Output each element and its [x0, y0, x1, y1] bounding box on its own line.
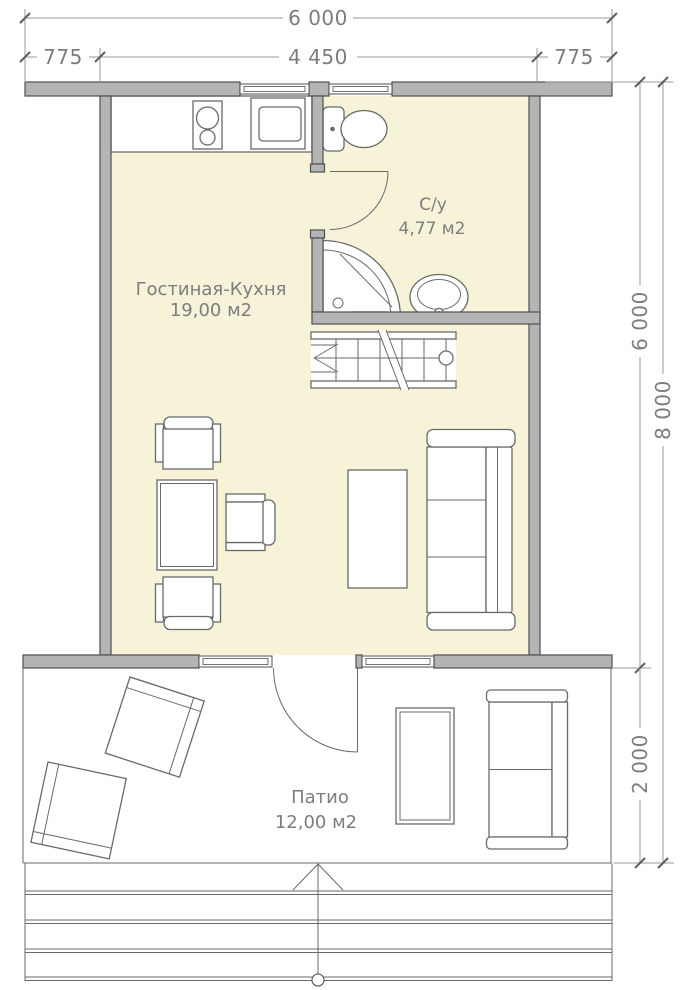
patio-armchair-2	[31, 762, 126, 859]
patio-table	[396, 708, 454, 824]
dim-label-right-patio: 2 000	[628, 734, 652, 794]
patio-area-label: 12,00 м2	[275, 812, 357, 833]
top-window-1	[240, 84, 309, 94]
dining-chair-top	[156, 417, 221, 469]
toilet	[323, 107, 387, 151]
kitchen-sink	[251, 98, 305, 149]
dim-label-right-house: 6 000	[628, 291, 652, 351]
coffee-table	[348, 470, 407, 588]
dim-right-patio: 2 000	[628, 668, 652, 868]
cooktop	[193, 101, 222, 149]
left-wall	[100, 96, 111, 655]
floor-plan: 6 000 775 4 450 775 6 000 8 000	[0, 0, 700, 990]
patio-armchair-1	[105, 677, 204, 777]
dim-label-top-left: 775	[43, 45, 83, 69]
dining-chair-right	[226, 494, 275, 551]
bathroom-area: 4,77 м2	[399, 219, 466, 239]
dining-chair-bottom	[156, 577, 221, 630]
top-wall	[25, 82, 612, 96]
dining-table	[157, 480, 217, 570]
dim-label-right-total: 8 000	[651, 380, 675, 440]
sofa	[427, 430, 515, 631]
dim-top-sub: 775 4 450 775	[20, 45, 617, 82]
patio-name: Патио	[291, 787, 349, 808]
dim-label-top-middle: 4 450	[288, 45, 348, 69]
patio-wall	[23, 655, 612, 668]
patio-window-2	[362, 656, 434, 667]
living-kitchen-name: Гостиная-Кухня	[136, 279, 287, 300]
staircase	[311, 330, 456, 390]
dim-top-total: 6 000	[20, 5, 617, 82]
entry-arrow	[293, 864, 343, 986]
top-window-2	[329, 84, 392, 94]
patio-sofa	[487, 690, 568, 849]
dim-label-top-right: 775	[554, 45, 594, 69]
dim-label-top-total: 6 000	[288, 6, 348, 30]
right-wall	[529, 96, 540, 655]
floor-plan-drawing: 6 000 775 4 450 775 6 000 8 000	[0, 0, 700, 990]
patio-door	[274, 668, 358, 752]
bathroom-name: С/у	[419, 195, 447, 215]
patio-window-1	[199, 656, 272, 667]
living-kitchen-area: 19,00 м2	[170, 300, 252, 321]
patio-label: Патио 12,00 м2	[275, 787, 357, 833]
